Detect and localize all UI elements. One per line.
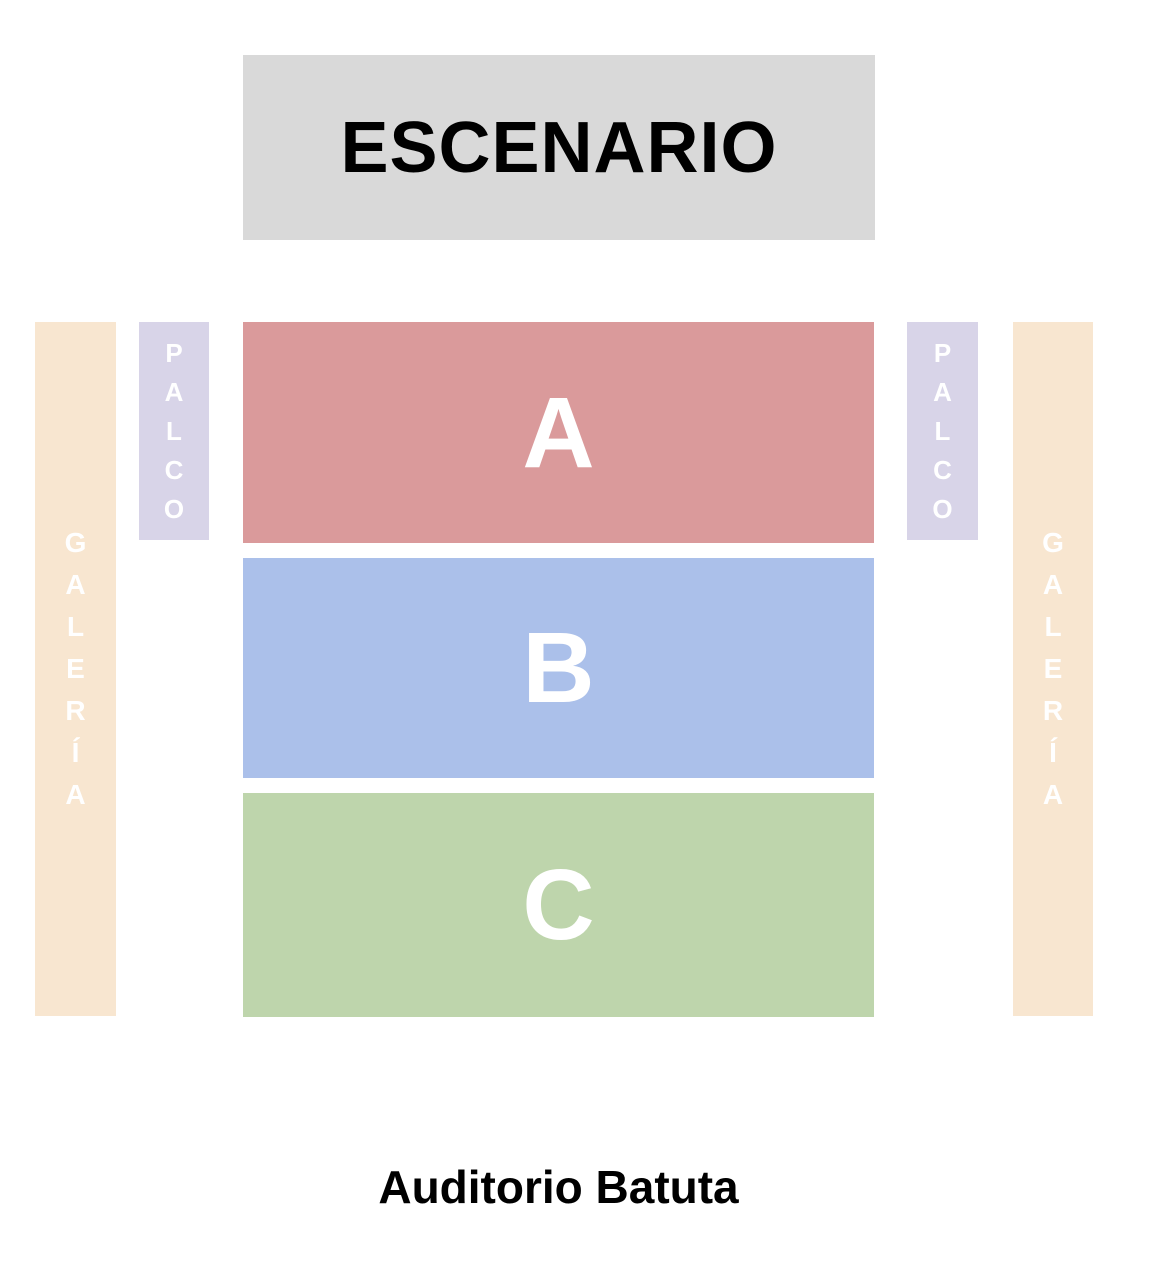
vertical-letter: C xyxy=(165,451,184,490)
seating-map: ESCENARIO GALERÍA PALCO A B C PALCO GALE… xyxy=(0,0,1150,1262)
vertical-letter: E xyxy=(66,648,85,690)
vertical-letter: L xyxy=(67,606,84,648)
vertical-letter: A xyxy=(1043,774,1063,816)
section-a-label: A xyxy=(522,383,594,483)
stage: ESCENARIO xyxy=(243,55,875,240)
stage-label: ESCENARIO xyxy=(340,107,777,189)
vertical-letter: R xyxy=(65,690,85,732)
vertical-letter: A xyxy=(65,564,85,606)
vertical-letter: L xyxy=(166,412,182,451)
vertical-letter: Í xyxy=(1049,732,1057,774)
section-c-label: C xyxy=(522,855,594,955)
vertical-letter: G xyxy=(65,522,87,564)
vertical-letter: L xyxy=(1044,606,1061,648)
vertical-letter: O xyxy=(164,490,184,529)
venue-title: Auditorio Batuta xyxy=(243,1160,874,1214)
vertical-letter: A xyxy=(165,373,184,412)
vertical-letter: P xyxy=(165,334,182,373)
vertical-letter: C xyxy=(933,451,952,490)
zone-galeria-right[interactable]: GALERÍA xyxy=(1013,322,1093,1016)
zone-palco-right[interactable]: PALCO xyxy=(907,322,978,540)
vertical-letter: A xyxy=(1043,564,1063,606)
section-b[interactable]: B xyxy=(243,558,874,778)
vertical-letter: G xyxy=(1042,522,1064,564)
vertical-letter: O xyxy=(932,490,952,529)
vertical-letter: Í xyxy=(72,732,80,774)
vertical-letter: R xyxy=(1043,690,1063,732)
zone-palco-left[interactable]: PALCO xyxy=(139,322,209,540)
vertical-letter: E xyxy=(1044,648,1063,690)
vertical-letter: A xyxy=(65,774,85,816)
vertical-letter: P xyxy=(934,334,951,373)
vertical-letter: A xyxy=(933,373,952,412)
section-a[interactable]: A xyxy=(243,322,874,543)
section-c[interactable]: C xyxy=(243,793,874,1017)
section-b-label: B xyxy=(522,618,594,718)
zone-galeria-left[interactable]: GALERÍA xyxy=(35,322,116,1016)
vertical-letter: L xyxy=(935,412,951,451)
